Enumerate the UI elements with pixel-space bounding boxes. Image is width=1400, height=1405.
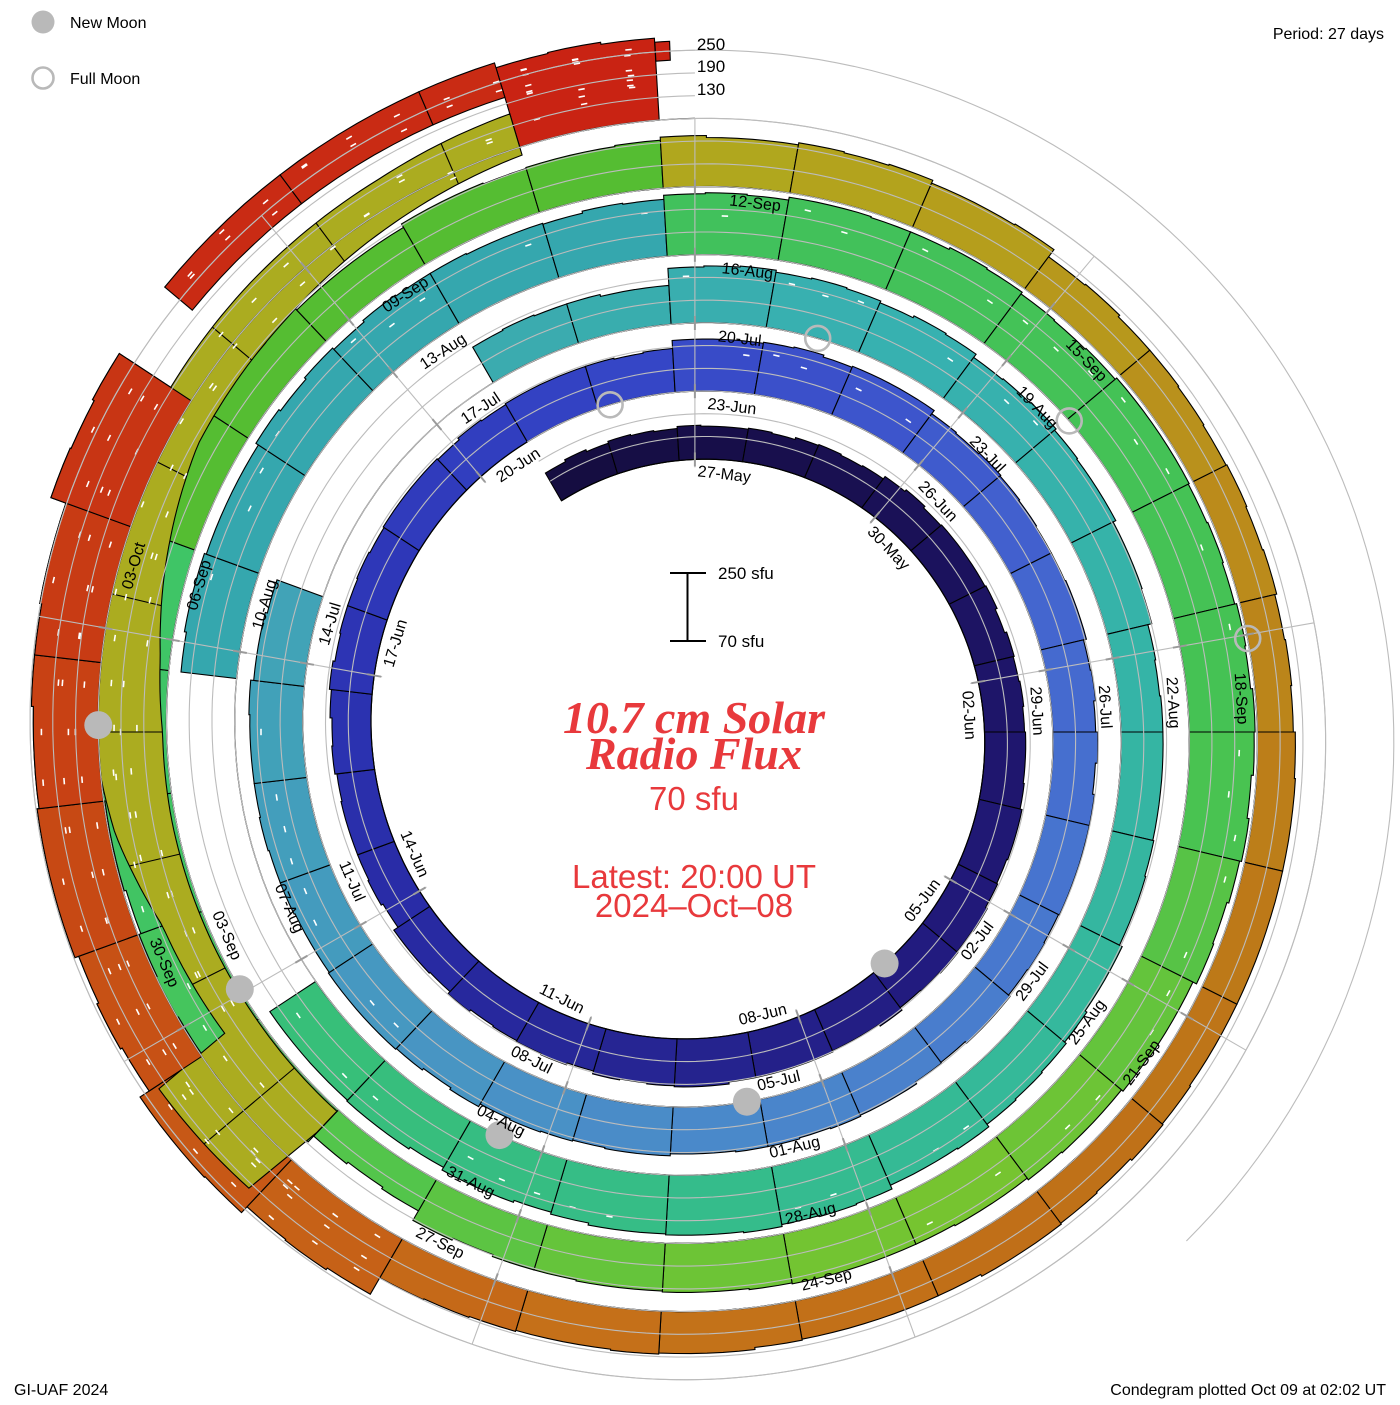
svg-text:29-Jun: 29-Jun — [1026, 686, 1046, 736]
svg-text:70 sfu: 70 sfu — [649, 780, 739, 817]
svg-text:26-Jul: 26-Jul — [1095, 685, 1115, 730]
svg-text:02-Jun: 02-Jun — [958, 690, 978, 740]
svg-text:70 sfu: 70 sfu — [718, 632, 764, 651]
svg-text:GI-UAF 2024: GI-UAF 2024 — [14, 1382, 108, 1399]
svg-text:Radio Flux: Radio Flux — [585, 728, 802, 779]
svg-text:2024–Oct–08: 2024–Oct–08 — [595, 887, 793, 924]
svg-text:Period: 27 days: Period: 27 days — [1273, 26, 1384, 43]
svg-text:250: 250 — [697, 35, 725, 54]
svg-text:130: 130 — [697, 80, 725, 99]
svg-text:Full Moon: Full Moon — [70, 71, 140, 88]
svg-text:Condegram plotted Oct 09 at 02: Condegram plotted Oct 09 at 02:02 UT — [1110, 1382, 1386, 1399]
svg-text:18-Sep: 18-Sep — [1231, 672, 1251, 725]
svg-text:190: 190 — [697, 57, 725, 76]
svg-text:22-Aug: 22-Aug — [1163, 676, 1183, 729]
svg-text:250 sfu: 250 sfu — [718, 564, 774, 583]
svg-text:New Moon: New Moon — [70, 15, 146, 32]
